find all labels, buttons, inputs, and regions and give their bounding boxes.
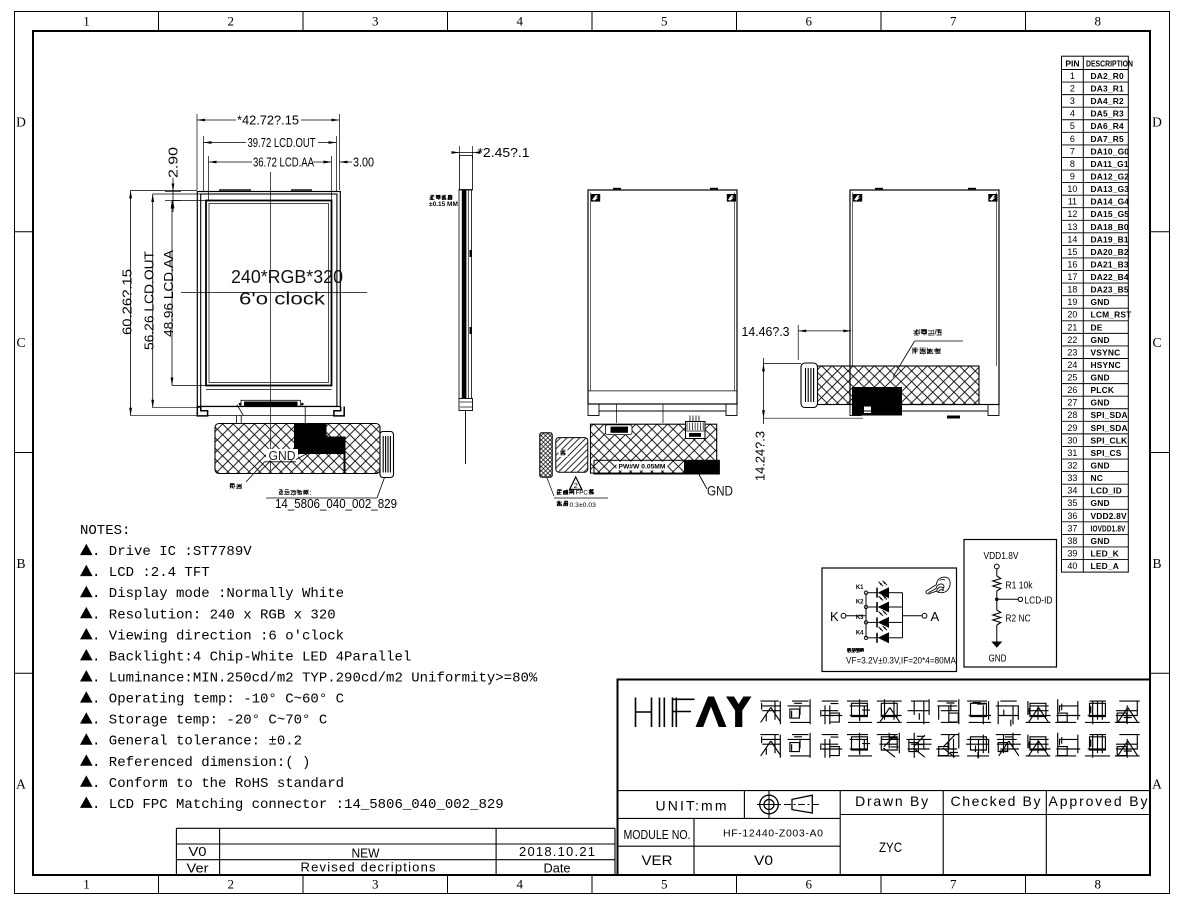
svg-text:GND: GND: [989, 653, 1007, 665]
svg-text:14_5806_040_002_829: 14_5806_040_002_829: [275, 496, 397, 511]
svg-text:. Resolution: 240 x RGB x 320: . Resolution: 240 x RGB x 320: [92, 607, 336, 623]
svg-text:K3: K3: [856, 615, 864, 621]
svg-text:SPI_CLK: SPI_CLK: [1091, 435, 1128, 445]
svg-text:C: C: [1152, 335, 1161, 350]
svg-text:. Operating temp: -10° C~60° C: . Operating temp: -10° C~60° C: [92, 692, 344, 708]
svg-text:1: 1: [1070, 71, 1075, 81]
svg-text:DA7_R5: DA7_R5: [1091, 134, 1124, 144]
svg-text:29: 29: [1067, 423, 1077, 433]
svg-text:DA4_R2: DA4_R2: [1091, 96, 1124, 106]
svg-text:7: 7: [950, 877, 957, 892]
svg-text:LCD-ID: LCD-ID: [1025, 596, 1053, 607]
svg-text:K4: K4: [856, 630, 864, 636]
svg-text:14.24?.3: 14.24?.3: [753, 431, 768, 481]
svg-text:GND: GND: [1091, 373, 1110, 383]
svg-text:14.46?.3: 14.46?.3: [742, 324, 790, 339]
svg-text:1: 1: [83, 14, 90, 29]
svg-text:GND: GND: [707, 484, 733, 499]
svg-text:30: 30: [1067, 435, 1077, 445]
svg-text:5: 5: [661, 877, 668, 892]
svg-text:PIN: PIN: [1065, 59, 1079, 69]
svg-text:DA15_G5: DA15_G5: [1091, 209, 1130, 219]
svg-text:DA23_B5: DA23_B5: [1091, 285, 1129, 295]
svg-text:DA14_G4: DA14_G4: [1091, 197, 1130, 207]
svg-text:LCM_RST: LCM_RST: [1091, 310, 1133, 320]
svg-text:6'o clock: 6'o clock: [239, 289, 325, 309]
svg-text:6: 6: [1070, 134, 1075, 144]
svg-text:22: 22: [1067, 335, 1077, 345]
svg-text:2: 2: [228, 877, 235, 892]
svg-text:VDD2.8V: VDD2.8V: [1091, 511, 1128, 521]
svg-text:DA10_G0: DA10_G0: [1091, 146, 1130, 156]
svg-text:Ver: Ver: [187, 861, 210, 876]
svg-text:60.26?.15: 60.26?.15: [120, 269, 135, 335]
svg-text:GND: GND: [1091, 398, 1110, 408]
svg-text:21: 21: [1067, 322, 1077, 332]
svg-text:2: 2: [1070, 84, 1075, 94]
svg-text:DA22_B4: DA22_B4: [1091, 272, 1129, 282]
svg-text:. Viewing direction :6 o'clock: . Viewing direction :6 o'clock: [92, 628, 344, 644]
svg-text:36.72 LCD.AA: 36.72 LCD.AA: [253, 155, 314, 170]
svg-text:Date: Date: [544, 861, 571, 876]
svg-text:0.3±0.03: 0.3±0.03: [570, 502, 597, 509]
svg-text:DA18_B0: DA18_B0: [1091, 222, 1129, 232]
svg-text:. Conform to the RoHS standard: . Conform to the RoHS standard: [92, 776, 344, 792]
svg-text:56.26 LCD.OUT: 56.26 LCD.OUT: [142, 251, 157, 350]
svg-text:DE: DE: [1091, 322, 1103, 332]
svg-text:LED_A: LED_A: [1091, 561, 1119, 571]
svg-text:D: D: [1152, 114, 1162, 129]
svg-text:5: 5: [661, 14, 668, 29]
svg-text:23: 23: [1067, 347, 1077, 357]
svg-text:28: 28: [1067, 410, 1077, 420]
svg-text:VER: VER: [642, 852, 673, 868]
svg-text:3: 3: [1070, 96, 1075, 106]
svg-text:GND: GND: [269, 448, 296, 463]
svg-text:. Storage temp: -20° C~70° C: . Storage temp: -20° C~70° C: [92, 713, 327, 729]
svg-text:DA21_B3: DA21_B3: [1091, 259, 1129, 269]
svg-text:20: 20: [1067, 310, 1077, 320]
svg-text:19: 19: [1067, 297, 1077, 307]
svg-text:VF=3.2V±0.3V,IF=20*4=80MA: VF=3.2V±0.3V,IF=20*4=80MA: [846, 656, 957, 666]
svg-text:2: 2: [228, 14, 235, 29]
svg-text:*42.72?.15: *42.72?.15: [237, 113, 299, 128]
svg-text:VDD1.8V: VDD1.8V: [984, 550, 1019, 562]
svg-text:DA20_B2: DA20_B2: [1091, 247, 1129, 257]
svg-text:GND: GND: [1091, 335, 1110, 345]
svg-text:. General tolerance: ±0.2: . General tolerance: ±0.2: [92, 734, 302, 750]
svg-text:. Luminance:MIN.250cd/m2 TYP.2: . Luminance:MIN.250cd/m2 TYP.290cd/m2 Un…: [92, 670, 538, 686]
svg-text:R1 10k: R1 10k: [1006, 580, 1034, 592]
svg-text:PW#W 0.05MM: PW#W 0.05MM: [619, 464, 666, 471]
svg-text:6: 6: [806, 14, 813, 29]
svg-text:3: 3: [372, 877, 379, 892]
svg-text:2018.10.21: 2018.10.21: [519, 844, 595, 859]
svg-text:. Referenced dimension:( ): . Referenced dimension:( ): [92, 755, 310, 771]
svg-text:DA11_G1: DA11_G1: [1091, 159, 1129, 169]
svg-text:FPC: FPC: [576, 490, 589, 497]
svg-text:18: 18: [1067, 285, 1077, 295]
svg-text:SPI_CS: SPI_CS: [1091, 448, 1122, 458]
svg-text:39: 39: [1067, 548, 1077, 558]
svg-text:VSYNC: VSYNC: [1091, 347, 1121, 357]
svg-text:MODULE NO.: MODULE NO.: [624, 827, 691, 842]
svg-text:26: 26: [1067, 385, 1077, 395]
svg-text:4: 4: [517, 877, 524, 892]
svg-text:8: 8: [1095, 877, 1102, 892]
svg-text:38: 38: [1067, 536, 1077, 546]
svg-text:NEW: NEW: [352, 846, 381, 861]
svg-text:2.90: 2.90: [166, 147, 181, 178]
svg-text:PLCK: PLCK: [1091, 385, 1115, 395]
svg-text:. Backlight:4 Chip-White LED 4: . Backlight:4 Chip-White LED 4Parallel: [92, 649, 411, 665]
svg-text:B: B: [16, 556, 25, 571]
svg-text:GND: GND: [1091, 297, 1110, 307]
svg-text:16: 16: [1067, 259, 1077, 269]
svg-text:4: 4: [1070, 109, 1075, 119]
svg-text:25: 25: [1067, 373, 1077, 383]
svg-text:A: A: [931, 609, 940, 624]
svg-text:27: 27: [1067, 398, 1077, 408]
svg-text:1: 1: [83, 877, 90, 892]
svg-text:LCD_ID: LCD_ID: [1091, 486, 1122, 496]
svg-text:*2.45?.1: *2.45?.1: [478, 145, 530, 160]
svg-text:HF-12440-Z003-A0: HF-12440-Z003-A0: [723, 828, 823, 840]
svg-text:D: D: [16, 114, 26, 129]
svg-text:12: 12: [1067, 209, 1077, 219]
svg-text:±0.15 MM: ±0.15 MM: [429, 201, 458, 208]
svg-text:GND: GND: [1091, 498, 1110, 508]
svg-text:B: B: [1152, 556, 1161, 571]
svg-text:DESCRIPTION: DESCRIPTION: [1086, 59, 1133, 69]
svg-text:7: 7: [1070, 146, 1075, 156]
svg-text:15: 15: [1067, 247, 1077, 257]
svg-text:V0: V0: [189, 844, 207, 859]
svg-text:4: 4: [517, 14, 524, 29]
svg-text:R2 NC: R2 NC: [1006, 613, 1031, 625]
svg-text:. LCD FPC Matching connector :: . LCD FPC Matching connector :14_5806_04…: [92, 797, 504, 813]
svg-text:SPI_SDA: SPI_SDA: [1091, 423, 1128, 433]
svg-text:Revised decriptions: Revised decriptions: [301, 860, 437, 875]
svg-text:3: 3: [372, 14, 379, 29]
svg-text:IOVDD1.8V: IOVDD1.8V: [1091, 523, 1126, 533]
svg-text:DA5_R3: DA5_R3: [1091, 109, 1124, 119]
svg-text:3.00: 3.00: [353, 155, 374, 170]
svg-text:240*RGB*320: 240*RGB*320: [231, 267, 343, 287]
svg-text:9: 9: [1070, 172, 1075, 182]
svg-text:8: 8: [1070, 159, 1075, 169]
svg-text:. LCD :2.4 TFT: . LCD :2.4 TFT: [92, 565, 210, 581]
svg-text:K: K: [830, 609, 839, 624]
svg-text:32: 32: [1067, 460, 1077, 470]
svg-text:DA6_R4: DA6_R4: [1091, 121, 1124, 131]
svg-text:A: A: [1152, 777, 1162, 792]
svg-text:36: 36: [1067, 511, 1077, 521]
svg-text:Drawn By: Drawn By: [855, 793, 928, 809]
svg-text:48.96 LCD.AA: 48.96 LCD.AA: [161, 250, 176, 337]
svg-text:31: 31: [1067, 448, 1077, 458]
svg-text:7: 7: [950, 14, 957, 29]
svg-text:NOTES:: NOTES:: [80, 523, 130, 539]
svg-text:40: 40: [1067, 561, 1077, 571]
svg-text:DA12_G2: DA12_G2: [1091, 172, 1130, 182]
svg-text:GND: GND: [1091, 460, 1110, 470]
svg-text:24: 24: [1067, 360, 1077, 370]
svg-text:ZYC: ZYC: [879, 839, 902, 855]
svg-text:17: 17: [1067, 272, 1077, 282]
svg-text:DA13_G3: DA13_G3: [1091, 184, 1130, 194]
svg-text:39.72 LCD.OUT: 39.72 LCD.OUT: [248, 135, 316, 150]
svg-text:NC: NC: [1091, 473, 1104, 483]
svg-text:34: 34: [1067, 486, 1077, 496]
svg-text:A: A: [16, 777, 26, 792]
svg-text:35: 35: [1067, 498, 1077, 508]
svg-text:K2: K2: [856, 600, 864, 606]
svg-text:C: C: [16, 335, 25, 350]
svg-text:DA19_B1: DA19_B1: [1091, 234, 1129, 244]
svg-text:14: 14: [1067, 234, 1077, 244]
svg-text:Checked By: Checked By: [951, 793, 1041, 809]
svg-text:DA3_R1: DA3_R1: [1091, 84, 1124, 94]
svg-text:6: 6: [806, 877, 813, 892]
svg-text:GND: GND: [1091, 536, 1110, 546]
svg-text:8: 8: [1095, 14, 1102, 29]
svg-text:5: 5: [1070, 121, 1075, 131]
svg-text:SPI_SDA: SPI_SDA: [1091, 410, 1128, 420]
svg-text:K1: K1: [856, 585, 864, 591]
svg-text:HSYNC: HSYNC: [1091, 360, 1121, 370]
svg-text:DA2_R0: DA2_R0: [1091, 71, 1124, 81]
svg-text:33: 33: [1067, 473, 1077, 483]
svg-text:13: 13: [1067, 222, 1077, 232]
svg-text:37: 37: [1067, 523, 1077, 533]
svg-text:LED_K: LED_K: [1091, 548, 1119, 558]
svg-text:11: 11: [1068, 197, 1077, 207]
svg-text:. Drive IC :ST7789V: . Drive IC :ST7789V: [92, 544, 252, 560]
svg-text:V0: V0: [754, 852, 773, 868]
svg-text:. Display mode :Normally White: . Display mode :Normally White: [92, 586, 344, 602]
svg-text:Approved By: Approved By: [1049, 793, 1148, 809]
svg-text:10: 10: [1067, 184, 1077, 194]
